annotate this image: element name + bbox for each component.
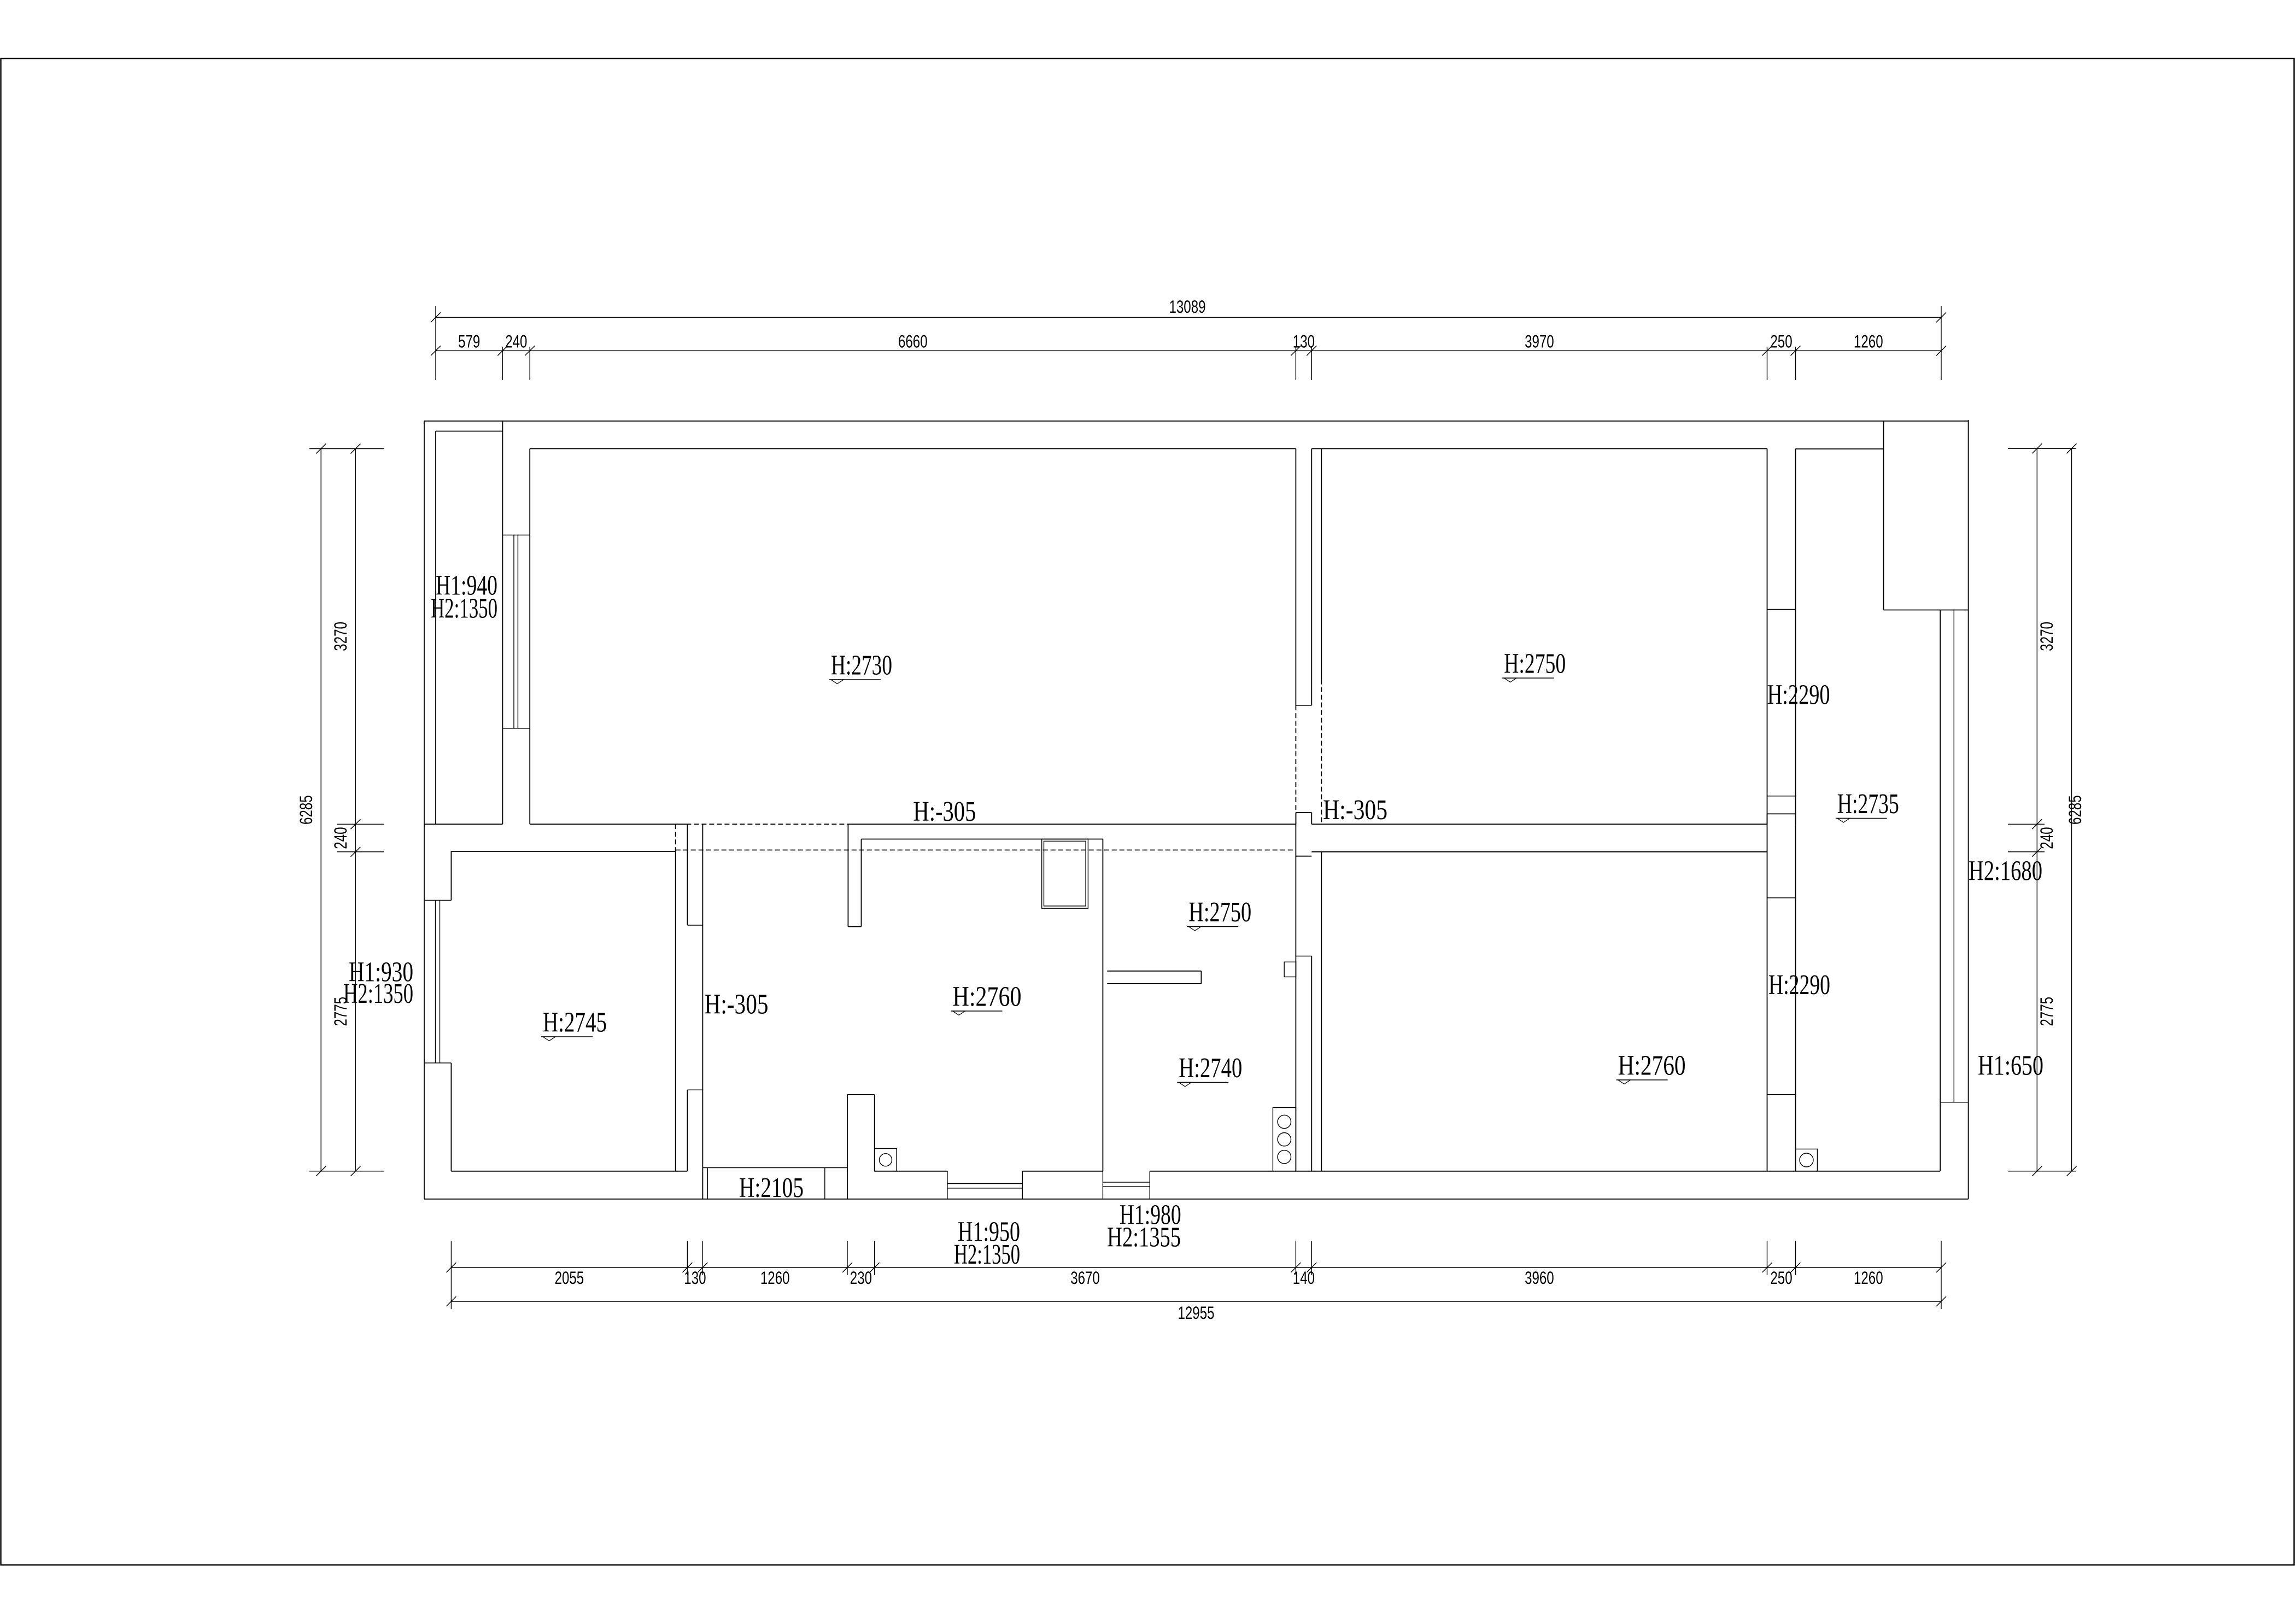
svg-text:H:2740: H:2740 <box>1179 1053 1242 1084</box>
svg-text:H:2105: H:2105 <box>739 1172 804 1204</box>
svg-text:240: 240 <box>2037 827 2057 849</box>
svg-text:13089: 13089 <box>1169 297 1206 317</box>
svg-text:H2:1350: H2:1350 <box>954 1239 1020 1270</box>
svg-text:H:2745: H:2745 <box>543 1007 607 1038</box>
svg-text:H:-305: H:-305 <box>1323 795 1387 826</box>
svg-text:1260: 1260 <box>760 1268 790 1288</box>
svg-text:H:2735: H:2735 <box>1837 788 1899 820</box>
svg-text:2055: 2055 <box>555 1268 584 1288</box>
svg-text:240: 240 <box>331 827 350 849</box>
svg-text:140: 140 <box>1293 1268 1315 1288</box>
svg-text:H:2760: H:2760 <box>1618 1050 1686 1082</box>
svg-text:H2:1350: H2:1350 <box>431 593 497 624</box>
svg-text:H2:1680: H2:1680 <box>1969 856 2042 887</box>
svg-text:3270: 3270 <box>2037 622 2057 651</box>
svg-text:250: 250 <box>1770 332 1792 352</box>
svg-text:H:2290: H:2290 <box>1768 969 1830 1001</box>
svg-text:12955: 12955 <box>1178 1303 1215 1323</box>
svg-text:H:2290: H:2290 <box>1767 680 1830 711</box>
svg-text:3670: 3670 <box>1070 1268 1100 1288</box>
svg-text:H:2730: H:2730 <box>831 650 892 681</box>
svg-text:1260: 1260 <box>1854 332 1883 352</box>
svg-text:2775: 2775 <box>2037 997 2057 1026</box>
svg-text:6660: 6660 <box>898 332 928 352</box>
svg-text:3270: 3270 <box>331 622 350 651</box>
svg-text:H:-305: H:-305 <box>913 796 976 827</box>
svg-text:H:2750: H:2750 <box>1504 649 1566 680</box>
svg-text:6285: 6285 <box>296 795 316 825</box>
svg-text:6285: 6285 <box>2065 795 2085 825</box>
svg-text:230: 230 <box>850 1268 872 1288</box>
svg-text:H:-305: H:-305 <box>705 989 769 1020</box>
svg-text:H2:1350: H2:1350 <box>343 978 413 1009</box>
svg-text:130: 130 <box>684 1268 706 1288</box>
svg-text:H2:1355: H2:1355 <box>1107 1222 1181 1253</box>
svg-text:579: 579 <box>458 332 480 352</box>
svg-text:H:2750: H:2750 <box>1188 897 1251 928</box>
svg-text:240: 240 <box>505 332 527 352</box>
svg-text:130: 130 <box>1293 332 1315 352</box>
svg-text:H:2760: H:2760 <box>953 982 1022 1013</box>
svg-text:H1:650: H1:650 <box>1978 1050 2043 1082</box>
svg-text:250: 250 <box>1770 1268 1792 1288</box>
svg-text:3960: 3960 <box>1525 1268 1554 1288</box>
svg-text:1260: 1260 <box>1854 1268 1883 1288</box>
svg-text:3970: 3970 <box>1525 332 1554 352</box>
